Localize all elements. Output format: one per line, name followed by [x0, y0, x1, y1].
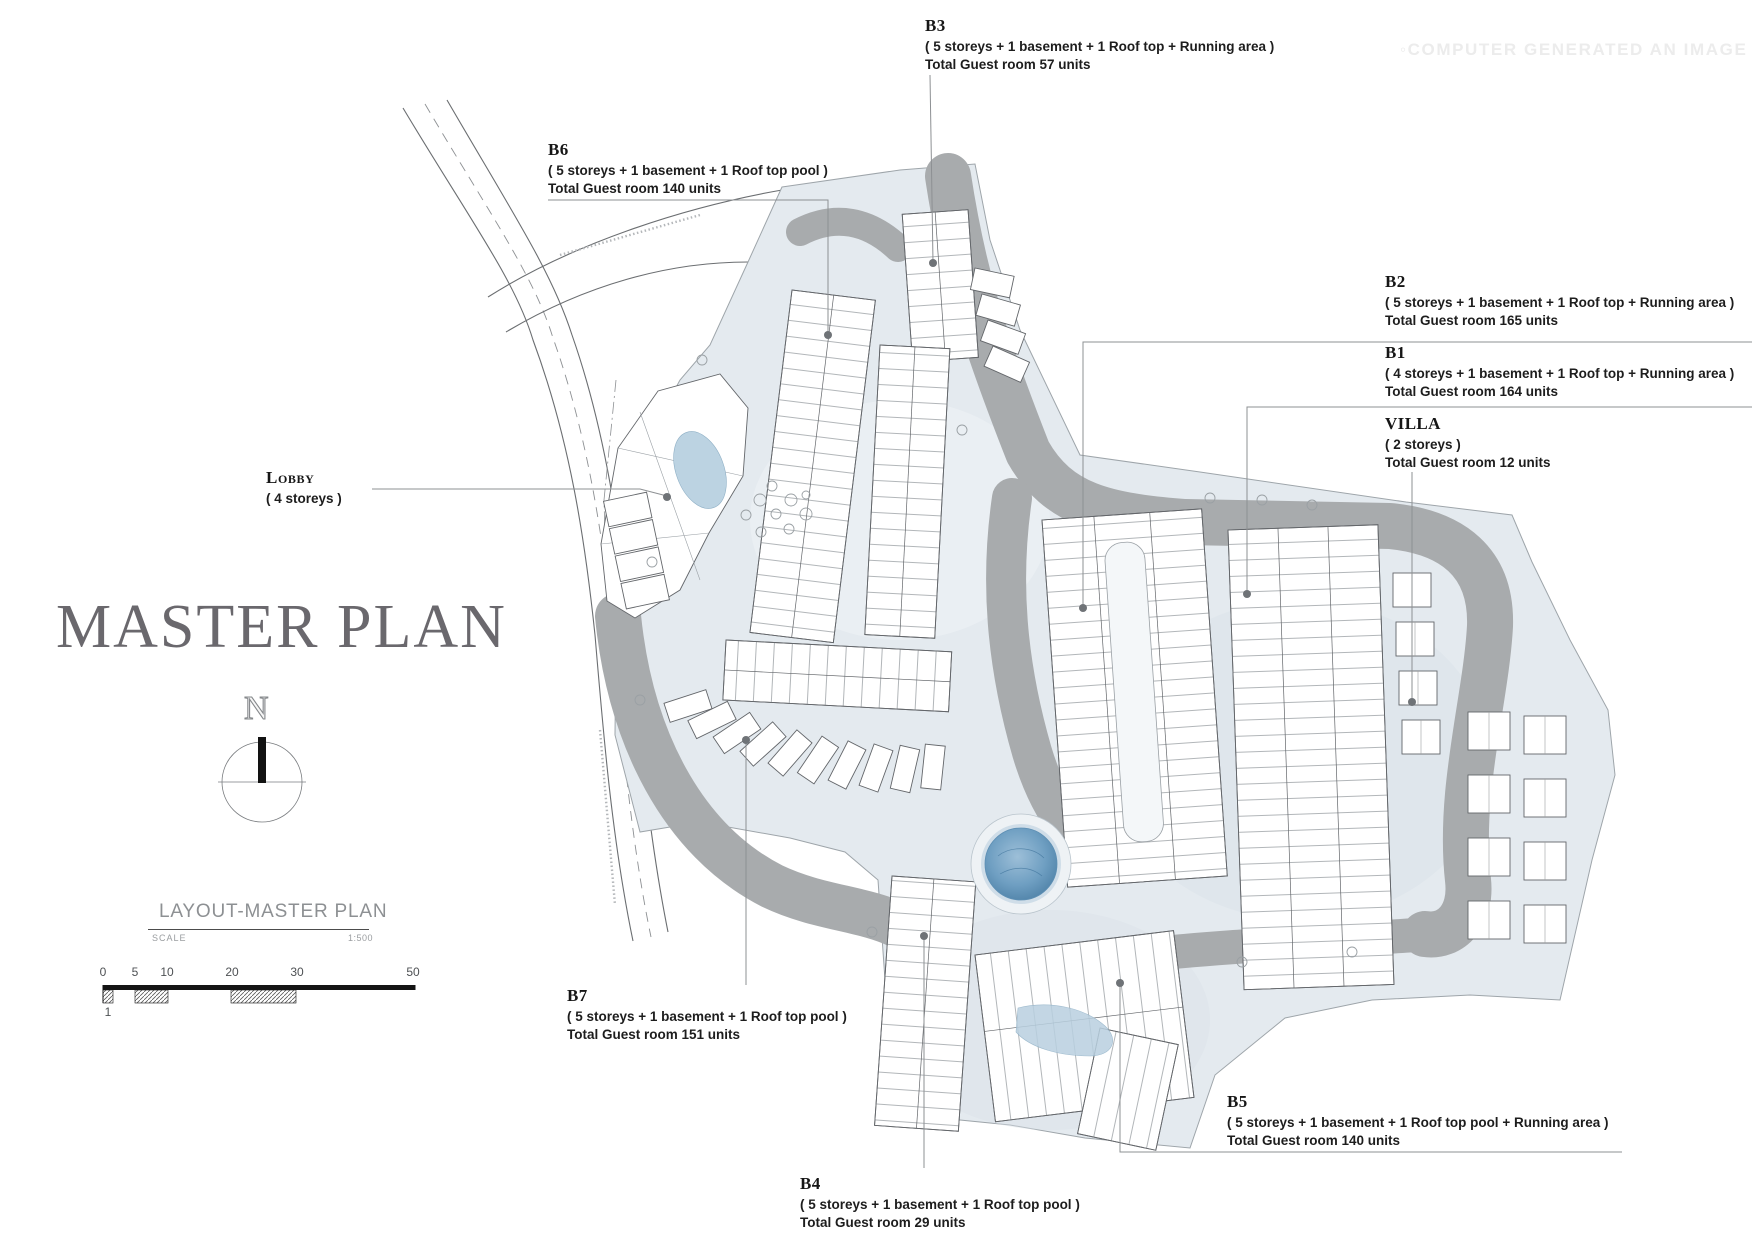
- scale-label: SCALE: [152, 933, 187, 943]
- annotation-b3-title: B3: [925, 16, 1274, 36]
- annotation-lobby-title: Lobby: [266, 468, 342, 488]
- annotation-b5-total: Total Guest room 140 units: [1227, 1132, 1608, 1150]
- legend-heading: LAYOUT-MASTER PLAN: [159, 901, 387, 923]
- scale-tick-50: 50: [401, 965, 425, 979]
- annotation-b7-total: Total Guest room 151 units: [567, 1026, 847, 1044]
- annotation-lobby: Lobby ( 4 storeys ): [266, 468, 342, 508]
- annotation-b1-total: Total Guest room 164 units: [1385, 383, 1734, 401]
- scale-value: 1:500: [348, 933, 373, 943]
- annotation-b6-title: B6: [548, 140, 828, 160]
- annotation-villa-desc: ( 2 storeys ): [1385, 436, 1551, 454]
- annotation-b7-title: B7: [567, 986, 847, 1006]
- annotation-b4-title: B4: [800, 1174, 1080, 1194]
- annotation-b7: B7 ( 5 storeys + 1 basement + 1 Roof top…: [567, 986, 847, 1043]
- scale-tick-20: 20: [220, 965, 244, 979]
- annotation-b5-desc: ( 5 storeys + 1 basement + 1 Roof top po…: [1227, 1114, 1608, 1132]
- legend-underline: [148, 929, 369, 930]
- building-b4-footprint: [875, 876, 976, 1131]
- north-label: N: [244, 690, 269, 728]
- scale-tick-30: 30: [285, 965, 309, 979]
- scale-bar: [103, 985, 415, 1003]
- annotation-b3-desc: ( 5 storeys + 1 basement + 1 Roof top + …: [925, 38, 1274, 56]
- annotation-villa: VILLA ( 2 storeys ) Total Guest room 12 …: [1385, 414, 1551, 471]
- scale-tick-5: 5: [123, 965, 147, 979]
- annotation-lobby-desc: ( 4 storeys ): [266, 490, 342, 508]
- annotation-b1: B1 ( 4 storeys + 1 basement + 1 Roof top…: [1385, 343, 1734, 400]
- building-b7-slab: [723, 640, 952, 712]
- annotation-b1-desc: ( 4 storeys + 1 basement + 1 Roof top + …: [1385, 365, 1734, 383]
- annotation-b2-title: B2: [1385, 272, 1734, 292]
- scale-tick-10: 10: [155, 965, 179, 979]
- north-needle: [258, 737, 266, 783]
- watermark: ◦COMPUTER GENERATED AN IMAGE: [1400, 40, 1752, 60]
- north-compass: [218, 737, 306, 822]
- annotation-b2-total: Total Guest room 165 units: [1385, 312, 1734, 330]
- building-b6-east-strip: [865, 345, 950, 638]
- annotation-villa-title: VILLA: [1385, 414, 1551, 434]
- annotation-b4: B4 ( 5 storeys + 1 basement + 1 Roof top…: [800, 1174, 1080, 1231]
- annotation-b4-desc: ( 5 storeys + 1 basement + 1 Roof top po…: [800, 1196, 1080, 1214]
- annotation-b3-total: Total Guest room 57 units: [925, 56, 1274, 74]
- annotation-b5-title: B5: [1227, 1092, 1608, 1112]
- building-b2-footprint: [1042, 509, 1227, 887]
- scale-sub-tick: 1: [98, 1005, 118, 1019]
- annotation-b4-total: Total Guest room 29 units: [800, 1214, 1080, 1232]
- annotation-b6-total: Total Guest room 140 units: [548, 180, 828, 198]
- building-b1-footprint: [1228, 525, 1394, 990]
- page-title: MASTER PLAN: [56, 592, 507, 663]
- annotation-b2-desc: ( 5 storeys + 1 basement + 1 Roof top + …: [1385, 294, 1734, 312]
- annotation-b1-title: B1: [1385, 343, 1734, 363]
- scale-tick-0: 0: [91, 965, 115, 979]
- annotation-b6-desc: ( 5 storeys + 1 basement + 1 Roof top po…: [548, 162, 828, 180]
- master-plan-sheet: ◦COMPUTER GENERATED AN IMAGE MASTER PLAN…: [0, 0, 1755, 1241]
- annotation-b5: B5 ( 5 storeys + 1 basement + 1 Roof top…: [1227, 1092, 1608, 1149]
- annotation-b6: B6 ( 5 storeys + 1 basement + 1 Roof top…: [548, 140, 828, 197]
- annotation-b2: B2 ( 5 storeys + 1 basement + 1 Roof top…: [1385, 272, 1734, 329]
- annotation-b7-desc: ( 5 storeys + 1 basement + 1 Roof top po…: [567, 1008, 847, 1026]
- annotation-villa-total: Total Guest room 12 units: [1385, 454, 1551, 472]
- annotation-b3: B3 ( 5 storeys + 1 basement + 1 Roof top…: [925, 16, 1274, 73]
- building-b3-footprint: [902, 210, 978, 362]
